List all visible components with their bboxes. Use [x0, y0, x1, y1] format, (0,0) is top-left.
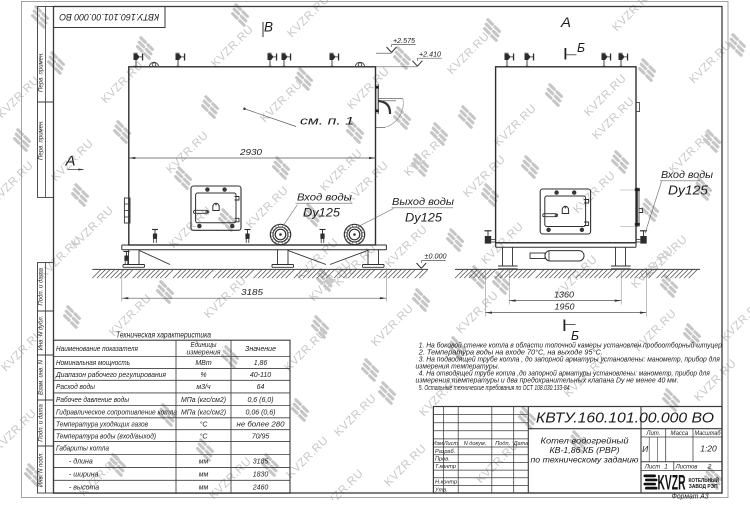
svg-text:°С: °С [200, 432, 209, 440]
svg-text:+2.575: +2.575 [393, 36, 416, 45]
svg-text:Т.контр: Т.контр [435, 464, 456, 470]
svg-text:1,86: 1,86 [254, 360, 268, 367]
svg-text:Н.контр: Н.контр [435, 480, 457, 486]
svg-text:Dy125: Dy125 [303, 208, 341, 220]
svg-text:Подп. и дата: Подп. и дата [38, 267, 44, 305]
svg-text:KVZR: KVZR [658, 472, 686, 495]
svg-text:Перв. примен.: Перв. примен. [38, 52, 44, 92]
svg-text:Лист: Лист [443, 441, 459, 447]
svg-text:МВт: МВт [195, 360, 212, 367]
svg-text:°С: °С [200, 420, 209, 428]
svg-text:Разраб.: Разраб. [435, 449, 455, 455]
svg-text:+2.410: +2.410 [419, 50, 442, 59]
svg-text:0,06 (0,6): 0,06 (0,6) [246, 409, 276, 416]
svg-text:Листов: Листов [675, 464, 698, 470]
svg-text:Температура уходящих газов: Температура уходящих газов [56, 420, 148, 428]
svg-text:Лит.: Лит. [645, 431, 660, 437]
svg-text:мм: мм [199, 459, 209, 466]
svg-text:Dy125: Dy125 [668, 184, 708, 198]
svg-text:Dy125: Dy125 [405, 213, 443, 225]
svg-text:%: % [200, 372, 206, 379]
svg-text:2930: 2930 [239, 148, 263, 157]
svg-text:Значение: Значение [245, 346, 276, 353]
svg-text:А: А [560, 14, 571, 30]
svg-text:КВ-1,86 КБ (РВР): КВ-1,86 КБ (РВР) [550, 445, 620, 455]
svg-text:МПа (кгс/см2): МПа (кгс/см2) [181, 397, 226, 404]
svg-text:МПа (кгс/см2): МПа (кгс/см2) [181, 409, 226, 416]
svg-text:Габариты котла: Габариты котла [56, 445, 109, 453]
svg-text:Пров.: Пров. [435, 457, 450, 463]
svg-text:Б: Б [577, 40, 586, 55]
svg-text:Утв.: Утв. [434, 487, 448, 493]
svg-text:1: 1 [664, 463, 668, 470]
svg-text:КОТЕЛЬНЫЙ: КОТЕЛЬНЫЙ [689, 476, 720, 484]
svg-text:- высота: - высота [69, 484, 99, 491]
svg-text:м3/ч: м3/ч [196, 384, 211, 391]
svg-text:1:20: 1:20 [700, 444, 717, 454]
svg-text:Котел водогрейный: Котел водогрейный [541, 435, 629, 445]
svg-text:1830: 1830 [253, 471, 269, 478]
svg-text:Инв. N подл.: Инв. N подл. [38, 452, 44, 487]
svg-text:Взам. инв. N: Взам. инв. N [38, 359, 44, 395]
svg-text:Лист: Лист [644, 464, 660, 470]
svg-text:Единицы: Единицы [191, 341, 218, 349]
svg-text:Наименование показателя: Наименование показателя [56, 346, 138, 353]
svg-text:±0.000: ±0.000 [425, 251, 448, 260]
svg-text:Формат А3: Формат А3 [672, 493, 709, 500]
svg-text:1950: 1950 [555, 302, 576, 311]
svg-text:2: 2 [707, 463, 712, 470]
svg-text:Инв. N дубл.: Инв. N дубл. [38, 316, 44, 351]
svg-text:3185: 3185 [241, 288, 264, 297]
svg-text:Гидравлическое сопротивление к: Гидравлическое сопротивление котла [56, 408, 177, 416]
svg-text:КВТУ.160.101.00.000 ВО: КВТУ.160.101.00.000 ВО [536, 410, 714, 426]
svg-text:Перв. примен.: Перв. примен. [38, 120, 44, 160]
svg-text:Номинальная мощность: Номинальная мощность [56, 360, 130, 367]
svg-text:- длина: - длина [69, 458, 93, 466]
svg-text:- ширина: - ширина [69, 471, 99, 478]
svg-text:А: А [64, 153, 75, 169]
svg-text:В: В [264, 19, 273, 35]
svg-text:Расход воды: Расход воды [56, 383, 96, 391]
svg-text:N докум.: N докум. [464, 441, 487, 447]
svg-text:64: 64 [257, 384, 265, 391]
svg-text:КВТУ.160.101.00.000 ВО: КВТУ.160.101.00.000 ВО [59, 11, 160, 22]
svg-text:не более 280: не более 280 [237, 420, 285, 428]
svg-text:Температура воды (вход/выход): Температура воды (вход/выход) [56, 432, 156, 440]
svg-text:40-110: 40-110 [250, 372, 271, 379]
svg-text:Диапазон рабочего регулировани: Диапазон рабочего регулирования [55, 371, 166, 379]
svg-text:мм: мм [199, 471, 209, 478]
svg-text:5. Остальные технические треб: 5. Остальные технические требования по О… [419, 383, 571, 392]
svg-text:Изм.: Изм. [433, 441, 445, 447]
svg-text:Масса: Масса [671, 431, 689, 437]
svg-text:И: И [642, 444, 649, 454]
svg-text:Подп.: Подп. [495, 441, 510, 447]
svg-text:Рабочее давление воды: Рабочее давление воды [56, 396, 130, 404]
svg-text:измерения: измерения [187, 349, 221, 356]
svg-text:Вход воды: Вход воды [297, 192, 352, 204]
svg-text:Масштаб: Масштаб [695, 431, 722, 437]
svg-text:мм: мм [199, 484, 209, 491]
svg-text:3185: 3185 [253, 459, 269, 466]
svg-text:70/95: 70/95 [252, 433, 270, 440]
svg-text:ЗАВОД РЭП: ЗАВОД РЭП [689, 484, 718, 490]
svg-text:2460: 2460 [252, 484, 269, 491]
svg-text:Выход воды: Выход воды [392, 196, 454, 208]
svg-text:Дата: Дата [513, 441, 529, 447]
svg-text:Техническая характеристика: Техническая характеристика [116, 330, 211, 339]
svg-text:см. п. 1: см. п. 1 [300, 116, 354, 128]
svg-text:Вход воды: Вход воды [661, 169, 713, 181]
svg-text:по техническому заданию: по техническому заданию [531, 454, 640, 464]
svg-text:Подп. и дата: Подп. и дата [38, 404, 44, 442]
svg-text:0,6 (6,0): 0,6 (6,0) [247, 397, 273, 404]
svg-text:1360: 1360 [554, 290, 575, 299]
